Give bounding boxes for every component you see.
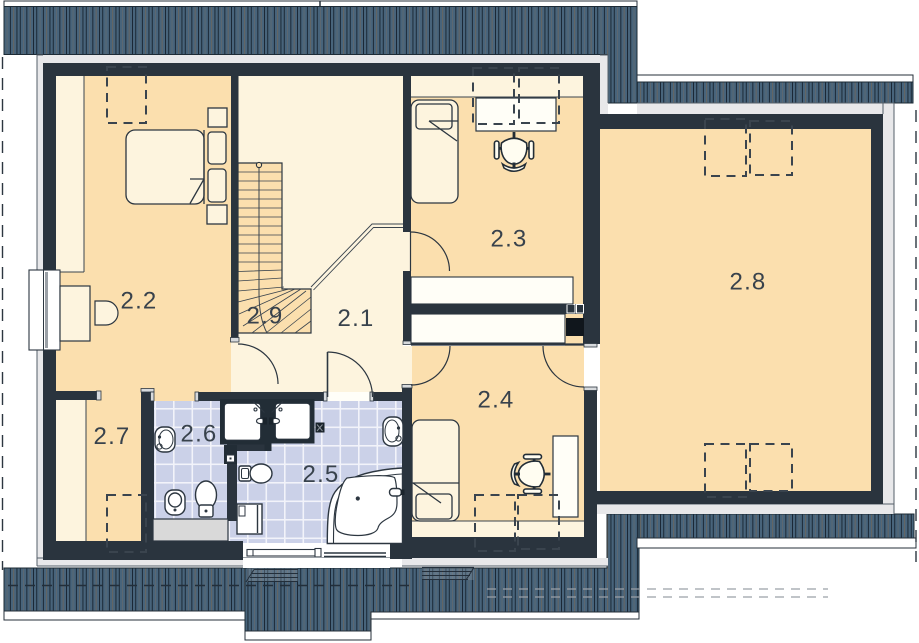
svg-text:2.5: 2.5	[303, 461, 340, 488]
svg-text:2.8: 2.8	[730, 269, 767, 296]
svg-text:2.2: 2.2	[121, 288, 158, 315]
svg-text:2.7: 2.7	[94, 423, 131, 450]
svg-text:2.3: 2.3	[491, 226, 528, 253]
svg-text:2.9: 2.9	[247, 303, 284, 330]
svg-text:2.4: 2.4	[478, 387, 515, 414]
svg-text:2.6: 2.6	[181, 421, 218, 448]
svg-text:2.1: 2.1	[338, 305, 375, 332]
